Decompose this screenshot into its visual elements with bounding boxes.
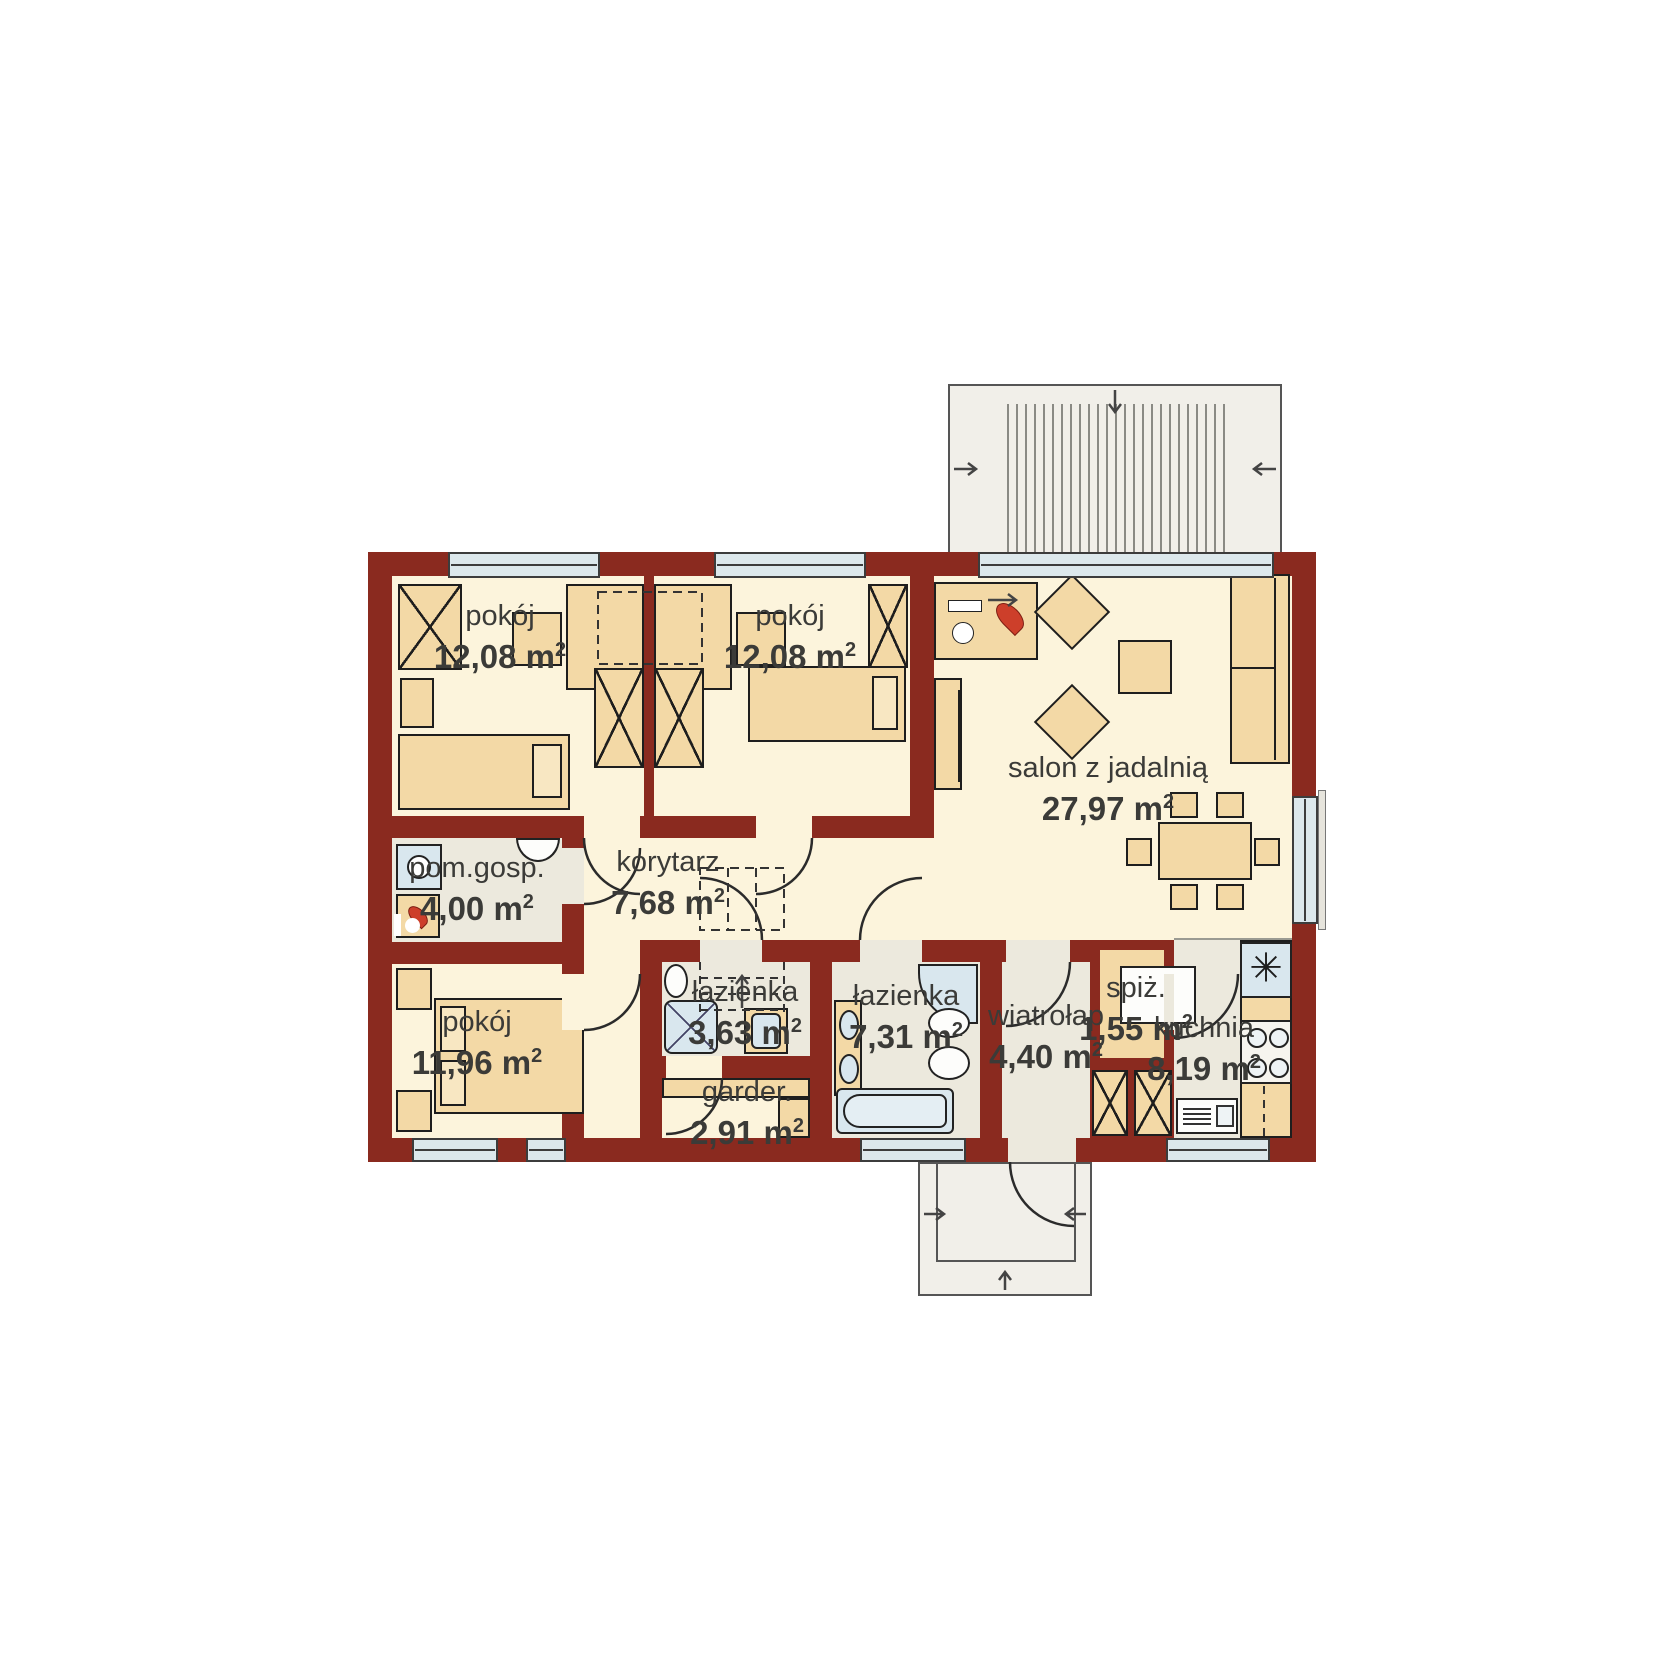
dishwasher-vents-icon (1183, 1105, 1211, 1127)
kitchen-sink: ✳ (1240, 942, 1292, 998)
fireplace-door (952, 622, 974, 644)
room-label-korytarz: korytarz 7,68 m2 (611, 846, 725, 920)
coffee-table (1118, 640, 1172, 694)
bed-pokoj-2 (748, 666, 906, 742)
room-label-kuchnia: kuchnia 8,19 m2 (1147, 1012, 1261, 1086)
window-kuchnia (1166, 1138, 1270, 1162)
nightstand (396, 1090, 432, 1132)
window-pokoj-1 (448, 552, 600, 578)
fireplace (934, 582, 1038, 660)
terrace (948, 384, 1282, 554)
dining-chair (1254, 838, 1280, 866)
window-pokoj-3 (412, 1138, 498, 1162)
cabinet-pokoj-1 (400, 678, 434, 728)
hall-wardrobe-1 (1092, 1070, 1128, 1136)
door-gap-pokoj-3 (562, 974, 584, 1030)
tv-icon (958, 690, 961, 782)
terrace-decking (1000, 404, 1232, 554)
sofa (1230, 574, 1290, 764)
door-gap-garderoba (666, 1056, 722, 1078)
terrace-slider-window (978, 552, 1274, 578)
window-hall-small (526, 1138, 566, 1162)
door-gap-wiatrolap (1006, 940, 1070, 962)
room-label-lazienka-duza: łazienka 7,31 m2 (849, 980, 963, 1054)
fireplace-wood-box (948, 600, 982, 612)
dining-chair (1216, 884, 1244, 910)
room-label-pokoj-1: pokój 12,08 m2 (434, 600, 566, 674)
tv-cabinet (934, 678, 962, 790)
nightstand (396, 968, 432, 1010)
washbasin (839, 1054, 859, 1084)
wardrobe-pokoj-2 (868, 584, 908, 668)
dining-chair (1170, 884, 1198, 910)
washbasin-small-bath (664, 964, 688, 998)
bathtub-inner (843, 1094, 947, 1128)
sofa-cushion-line (1232, 667, 1274, 669)
door-gap-pokoj-1 (584, 816, 640, 838)
bed-pokoj-1 (398, 734, 570, 810)
wardrobe-divider-a (594, 668, 644, 768)
door-gap-pom-gosp (562, 848, 584, 904)
room-label-pom-gosp: pom.gosp. 4,00 m2 (409, 852, 544, 926)
porch-step-line (936, 1162, 1076, 1262)
window-sill-right (1318, 790, 1326, 930)
room-label-salon: salon z jadalnią 27,97 m2 (1008, 752, 1208, 826)
room-label-pokoj-3: pokój 11,96 m2 (412, 1006, 542, 1080)
fireplace-flame-icon (991, 598, 1029, 636)
door-gap-pokoj-2 (756, 816, 812, 838)
wardrobe-divider-b (654, 668, 704, 768)
room-label-pokoj-2: pokój 12,08 m2 (724, 600, 856, 674)
dining-table (1158, 822, 1252, 880)
sink-star-icon: ✳ (1242, 948, 1290, 988)
front-door-gap (1008, 1138, 1076, 1162)
dishwasher-door-icon (1216, 1105, 1234, 1127)
dining-chair (1216, 792, 1244, 818)
dining-chair (1126, 838, 1152, 866)
pillow (872, 676, 898, 730)
pillow (532, 744, 562, 798)
dishwasher (1176, 1098, 1238, 1134)
bathtub (836, 1088, 954, 1134)
window-lazienka-duza (860, 1138, 966, 1162)
sofa-backrest-line (1274, 578, 1276, 760)
burner-icon (1269, 1058, 1289, 1078)
room-label-lazienka-mala: łazienka 3,63 m2 (688, 976, 802, 1050)
door-gap-lazienka-mala (700, 940, 762, 962)
room-label-garderoba: garder. 2,91 m2 (690, 1076, 804, 1150)
window-dining-right (1292, 796, 1318, 924)
door-gap-lazienka-duza (860, 940, 922, 962)
floor-plan-canvas: ✳ (0, 0, 1680, 1680)
floor-hall-stub (584, 940, 640, 1138)
burner-icon (1269, 1028, 1289, 1048)
window-pokoj-2 (714, 552, 866, 578)
entry-porch (918, 1162, 1092, 1296)
chimney-flue-icon (394, 914, 401, 936)
